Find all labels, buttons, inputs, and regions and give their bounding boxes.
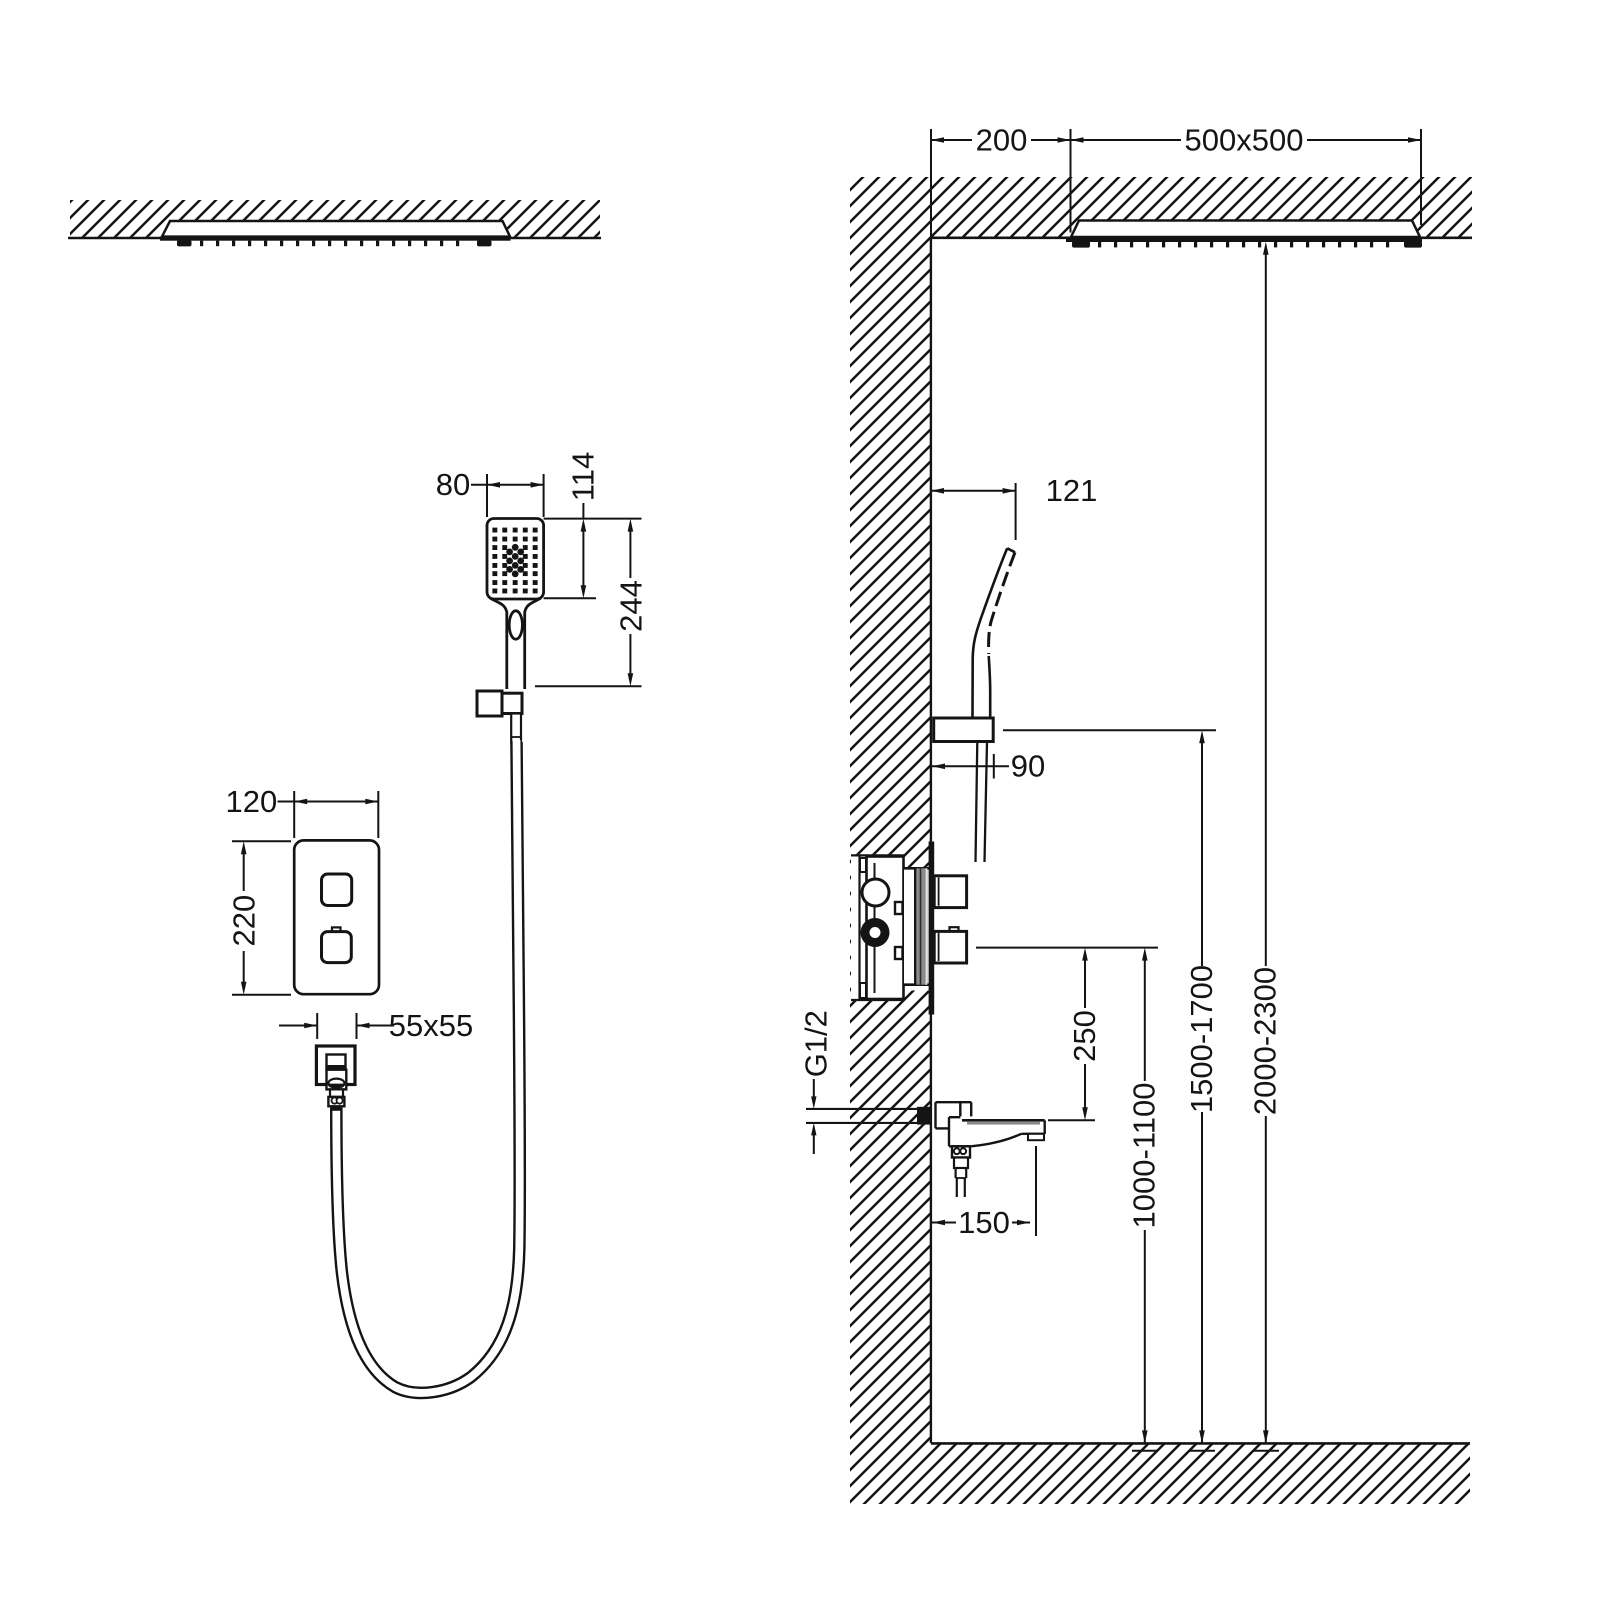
svg-text:1000-1100: 1000-1100	[1127, 1083, 1162, 1229]
svg-text:2000-2300: 2000-2300	[1248, 967, 1283, 1115]
svg-text:120: 120	[226, 784, 278, 819]
svg-text:150: 150	[958, 1205, 1010, 1240]
svg-text:G1/2: G1/2	[798, 1010, 833, 1077]
svg-text:80: 80	[436, 467, 470, 502]
svg-text:220: 220	[226, 895, 261, 947]
svg-text:90: 90	[1011, 749, 1045, 784]
svg-text:200: 200	[976, 123, 1028, 158]
svg-text:500x500: 500x500	[1185, 123, 1304, 158]
svg-text:244: 244	[613, 580, 648, 632]
svg-text:1500-1700: 1500-1700	[1184, 965, 1219, 1113]
svg-text:55x55: 55x55	[389, 1008, 473, 1043]
svg-text:121: 121	[1046, 473, 1098, 508]
svg-text:114: 114	[565, 452, 600, 501]
svg-text:250: 250	[1067, 1010, 1102, 1062]
